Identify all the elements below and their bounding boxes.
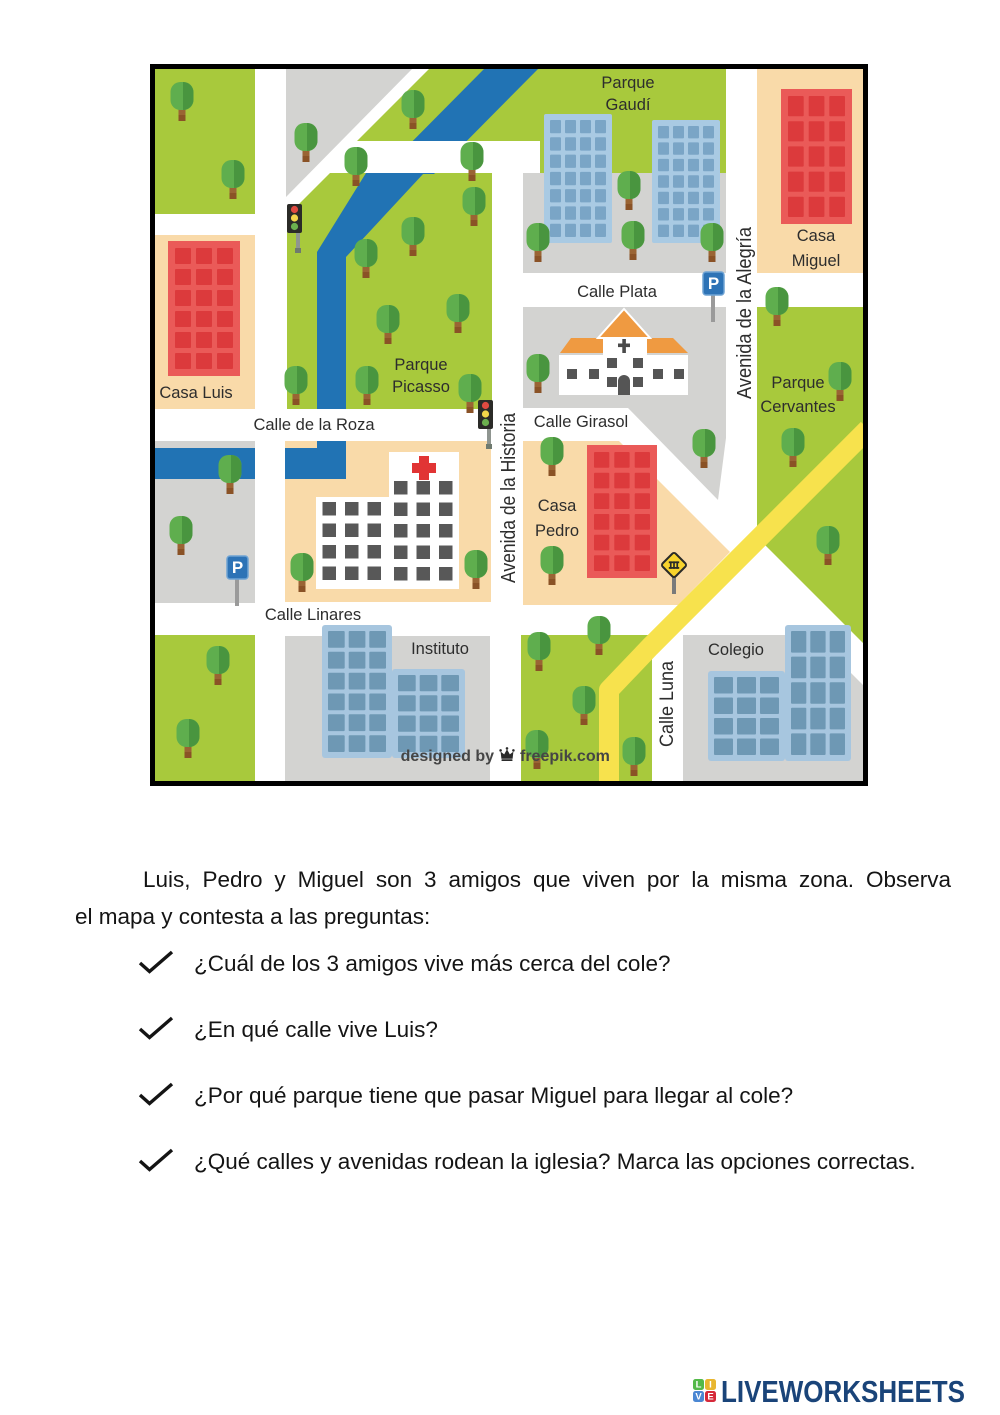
svg-text:Calle Luna: Calle Luna xyxy=(657,661,678,747)
svg-text:Casa: Casa xyxy=(797,227,836,245)
svg-text:V: V xyxy=(695,1392,702,1403)
svg-text:freepik.com: freepik.com xyxy=(520,748,610,765)
svg-text:Calle de la Roza: Calle de la Roza xyxy=(253,416,375,434)
svg-text:Pedro: Pedro xyxy=(535,522,579,540)
svg-text:Cervantes: Cervantes xyxy=(760,398,835,416)
svg-text:P: P xyxy=(232,558,243,577)
svg-text:E: E xyxy=(707,1392,713,1403)
svg-text:Instituto: Instituto xyxy=(411,640,469,658)
svg-text:Avenida de la Alegría: Avenida de la Alegría xyxy=(734,226,756,399)
svg-text:Casa Luis: Casa Luis xyxy=(159,384,232,402)
svg-text:Picasso: Picasso xyxy=(392,378,450,396)
svg-text:I: I xyxy=(709,1380,712,1391)
svg-text:Miguel: Miguel xyxy=(792,252,841,270)
svg-text:Calle Plata: Calle Plata xyxy=(577,283,658,301)
svg-text:Avenida de la Historia: Avenida de la Historia xyxy=(498,412,520,583)
svg-text:Calle Linares: Calle Linares xyxy=(265,606,361,624)
svg-text:Parque: Parque xyxy=(394,356,447,374)
svg-text:P: P xyxy=(708,274,719,293)
svg-text:Parque: Parque xyxy=(771,374,824,392)
svg-text:Colegio: Colegio xyxy=(708,641,764,659)
svg-text:LIVEWORKSHEETS: LIVEWORKSHEETS xyxy=(721,1374,965,1408)
svg-text:L: L xyxy=(696,1380,702,1391)
svg-text:Parque: Parque xyxy=(601,74,654,92)
svg-text:Calle Girasol: Calle Girasol xyxy=(534,413,628,431)
svg-text:Gaudí: Gaudí xyxy=(606,96,651,114)
svg-text:designed by: designed by xyxy=(401,748,494,765)
svg-text:Casa: Casa xyxy=(538,497,577,515)
